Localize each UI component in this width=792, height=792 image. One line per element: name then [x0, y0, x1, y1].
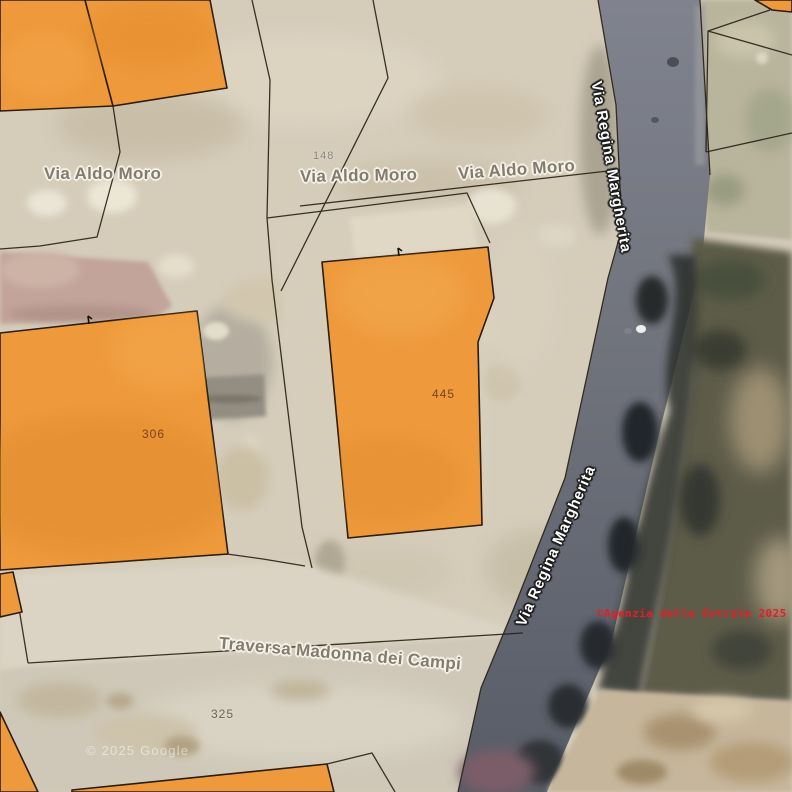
car-dark [667, 57, 679, 67]
map-canvas[interactable]: Via Aldo Moro 148 Via Aldo Moro Via Aldo… [0, 0, 792, 792]
satellite-and-cadastre-layer [0, 0, 792, 792]
car-white [636, 325, 646, 333]
